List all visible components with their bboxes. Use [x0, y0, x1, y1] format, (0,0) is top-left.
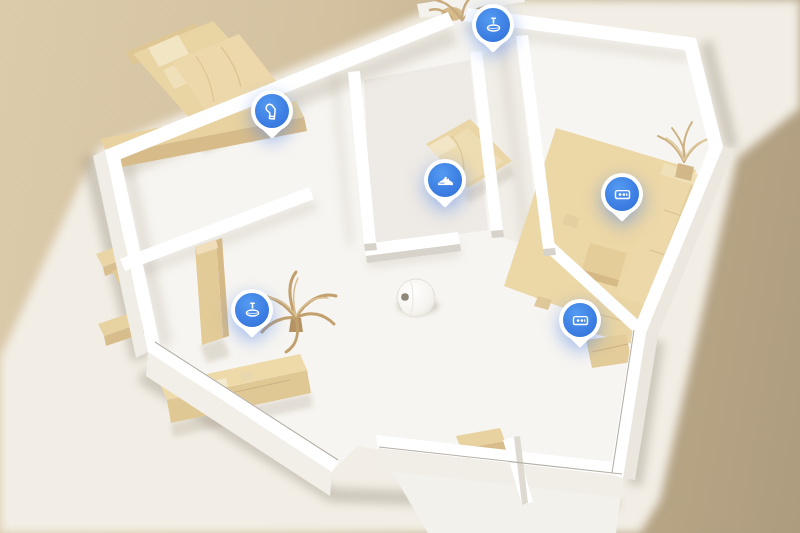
pin-disc [563, 303, 597, 337]
marker-hall-power-strip[interactable] [558, 299, 602, 359]
marker-bedroom2-mop[interactable] [230, 289, 274, 349]
shoe-icon [435, 170, 456, 191]
marker-small-bedroom-shoe[interactable] [423, 159, 467, 219]
home-3d-map [0, 0, 800, 533]
apartment-model [0, 0, 800, 533]
marker-bedroom-sock[interactable] [250, 90, 294, 150]
mop-icon [242, 300, 263, 321]
marker-living-power-strip[interactable] [600, 173, 644, 233]
power-strip-icon [570, 310, 591, 331]
mop-icon [483, 15, 504, 36]
marker-balcony-mop[interactable] [471, 4, 515, 64]
pin-disc [476, 8, 510, 42]
sock-icon [262, 101, 283, 122]
pin-disc [428, 163, 462, 197]
pin-disc [255, 94, 289, 128]
power-strip-icon [612, 184, 633, 205]
pin-disc [235, 293, 269, 327]
pin-disc [605, 177, 639, 211]
